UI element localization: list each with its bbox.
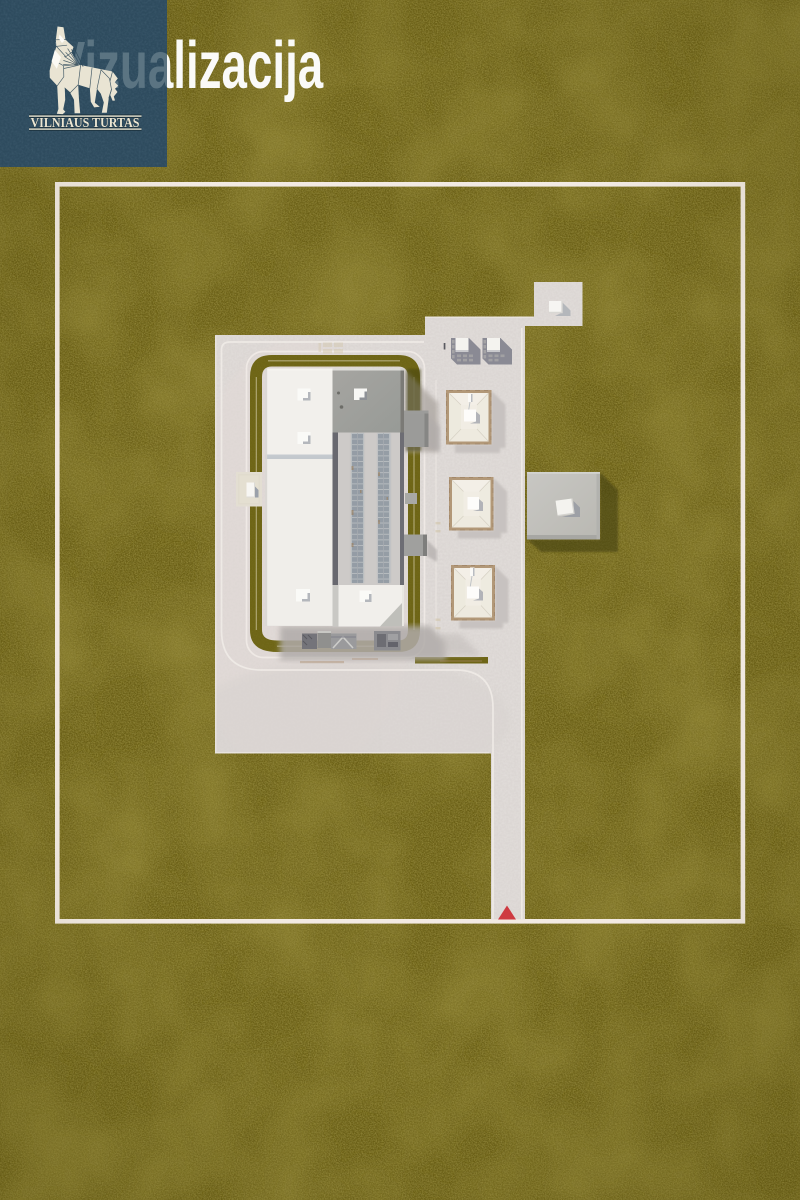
svg-text:VILNIAUS TURTAS: VILNIAUS TURTAS xyxy=(31,116,140,131)
